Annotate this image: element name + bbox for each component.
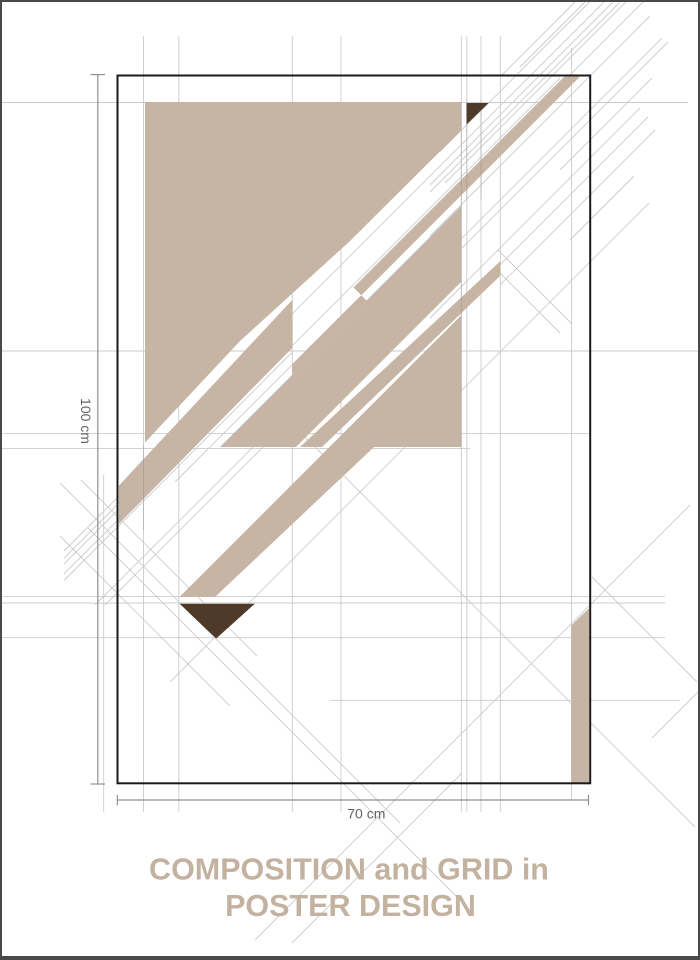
svg-text:70 cm: 70 cm xyxy=(347,805,385,821)
svg-text:100 cm: 100 cm xyxy=(78,398,94,444)
svg-text:POSTER DESIGN: POSTER DESIGN xyxy=(225,889,476,923)
svg-text:COMPOSITION and GRID in: COMPOSITION and GRID in xyxy=(149,853,549,887)
